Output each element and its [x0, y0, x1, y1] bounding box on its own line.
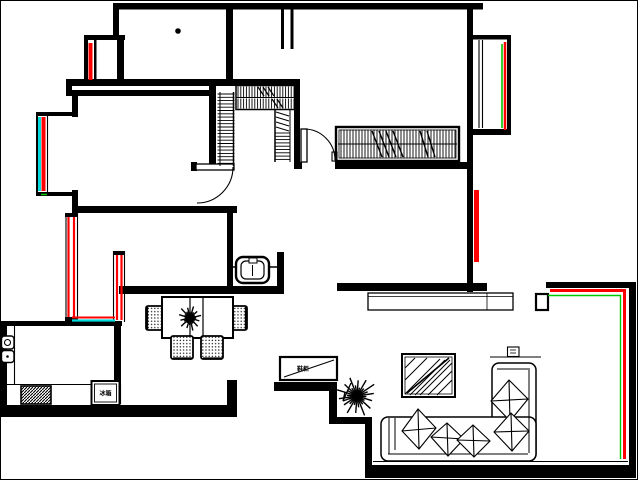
plant-center — [188, 316, 193, 321]
wall — [113, 3, 119, 39]
dining-chair — [201, 336, 223, 359]
wall — [66, 79, 72, 96]
hall-door-leaf — [196, 164, 234, 170]
floor-plan-canvas: 冰箱 鞋柜 — [0, 0, 638, 480]
ceiling-point — [175, 28, 181, 34]
wall — [467, 3, 473, 169]
kitchen-wall — [114, 322, 121, 384]
fridge-label: 冰箱 — [99, 390, 111, 398]
gas-stove — [21, 386, 51, 404]
wall — [337, 283, 487, 291]
kitchen-wall — [0, 321, 122, 326]
flue-line — [291, 9, 294, 49]
wall — [84, 35, 88, 83]
coffee-table — [402, 354, 455, 397]
closet-hangers-top-row2 — [238, 99, 294, 109]
dining-table — [162, 297, 233, 338]
wall — [335, 162, 473, 169]
wall — [546, 282, 636, 288]
entry-wall — [329, 417, 372, 424]
bay-window-wall — [36, 112, 38, 196]
fridge: 冰箱 — [92, 381, 120, 405]
wall-cap — [65, 213, 78, 217]
wall — [294, 83, 300, 163]
entry-wall — [365, 424, 372, 469]
wall — [117, 38, 124, 83]
wall — [119, 286, 279, 294]
balcony-wall — [507, 38, 511, 135]
wall — [227, 210, 233, 292]
dining-chair — [171, 336, 193, 359]
wall — [226, 9, 233, 79]
plant-center — [354, 393, 359, 398]
pillar-stub — [536, 294, 548, 310]
wall — [94, 40, 97, 83]
wall-bottom — [365, 465, 636, 478]
wall — [467, 169, 473, 292]
sink-drain — [5, 340, 11, 346]
wall-cap — [113, 251, 125, 255]
toilet-flush — [249, 258, 257, 263]
wall — [294, 162, 302, 169]
ac-ledge-outline — [368, 293, 513, 310]
flue-line — [281, 9, 284, 49]
entry-wall — [274, 382, 337, 391]
wall — [72, 90, 213, 96]
wall — [227, 380, 237, 417]
wall — [209, 83, 216, 170]
sink-drain-2 — [6, 355, 9, 358]
wall — [277, 252, 284, 294]
wall — [629, 282, 636, 478]
bay-window-wall — [36, 112, 75, 116]
floor-plan: 冰箱 鞋柜 — [0, 0, 638, 480]
kitchen-sink — [2, 336, 15, 363]
shoe-cabinet-label: 鞋柜 — [297, 365, 309, 373]
wall-top — [113, 3, 483, 10]
wall — [72, 206, 237, 213]
master-door-leaf — [301, 129, 307, 162]
balcony-wall — [473, 35, 511, 40]
wall — [0, 405, 237, 417]
